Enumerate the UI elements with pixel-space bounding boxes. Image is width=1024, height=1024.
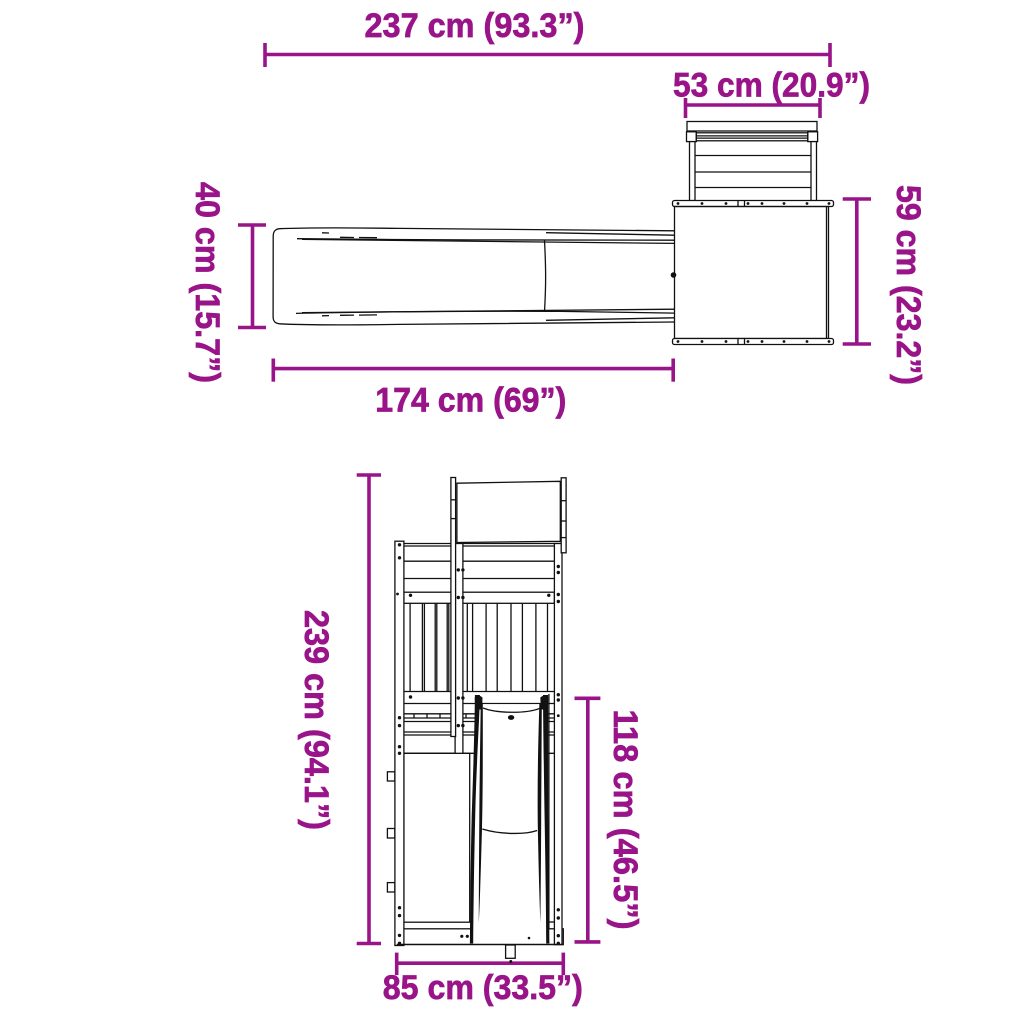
svg-text:59 cm (23.2”): 59 cm (23.2”)	[889, 185, 927, 385]
svg-text:174 cm (69”): 174 cm (69”)	[375, 382, 566, 420]
svg-text:85 cm (33.5”): 85 cm (33.5”)	[383, 969, 583, 1007]
svg-text:239 cm (94.1”): 239 cm (94.1”)	[297, 610, 335, 830]
svg-text:53 cm (20.9”): 53 cm (20.9”)	[673, 67, 870, 105]
svg-text:40 cm (15.7”): 40 cm (15.7”)	[188, 182, 226, 383]
svg-text:118 cm (46.5”): 118 cm (46.5”)	[606, 710, 644, 930]
svg-text:237 cm (93.3”): 237 cm (93.3”)	[365, 7, 585, 45]
